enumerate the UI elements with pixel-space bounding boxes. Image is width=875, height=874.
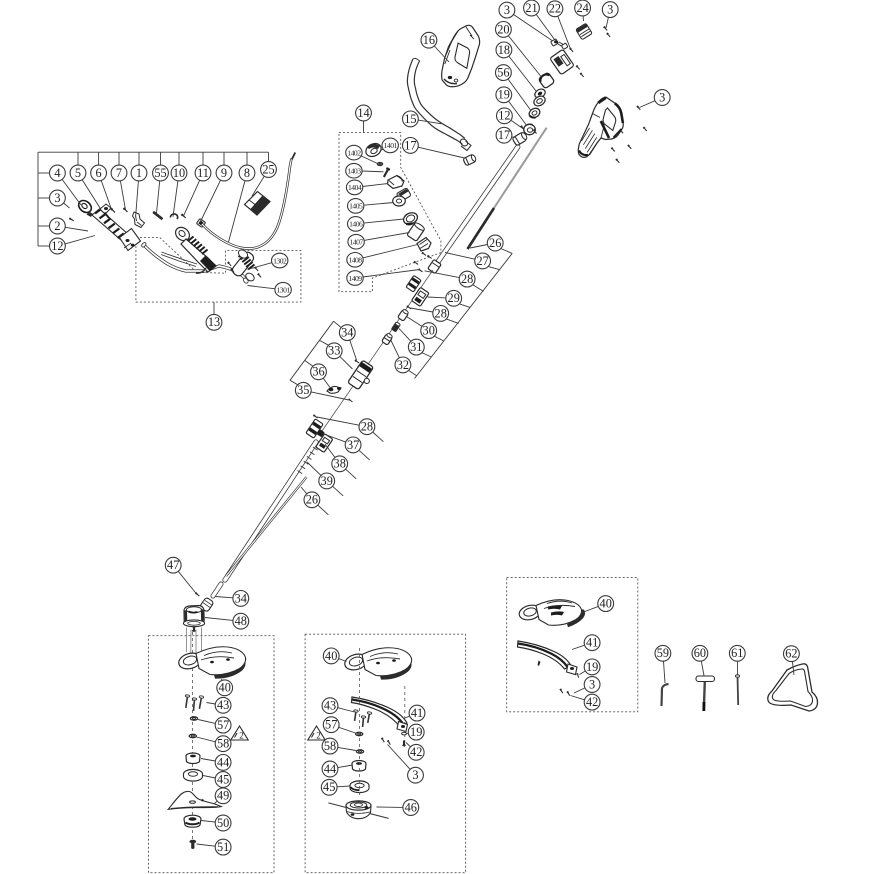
svg-text:60: 60: [694, 646, 706, 660]
svg-text:31: 31: [410, 340, 422, 354]
svg-text:28: 28: [435, 306, 447, 320]
svg-text:1405: 1405: [349, 202, 363, 211]
svg-text:43: 43: [217, 698, 229, 712]
svg-text:58: 58: [324, 739, 336, 753]
svg-text:61: 61: [731, 646, 743, 660]
svg-text:40: 40: [219, 681, 231, 695]
svg-text:40: 40: [600, 597, 612, 611]
svg-text:3: 3: [607, 3, 613, 17]
svg-text:1402: 1402: [347, 148, 361, 157]
svg-text:28: 28: [461, 272, 473, 286]
svg-text:1302: 1302: [273, 256, 287, 265]
svg-text:45: 45: [323, 780, 335, 794]
svg-text:21: 21: [525, 1, 537, 15]
svg-text:1404: 1404: [348, 183, 362, 192]
svg-text:46: 46: [405, 800, 417, 814]
svg-text:2: 2: [316, 731, 321, 741]
svg-text:26: 26: [306, 493, 318, 507]
svg-text:41: 41: [411, 706, 423, 720]
svg-text:2: 2: [239, 731, 244, 741]
svg-text:6: 6: [96, 166, 102, 180]
svg-text:28: 28: [361, 420, 373, 434]
svg-text:16: 16: [423, 33, 435, 47]
svg-text:29: 29: [448, 291, 460, 305]
svg-text:1406: 1406: [349, 220, 363, 229]
svg-text:1401: 1401: [384, 141, 398, 150]
svg-text:3: 3: [54, 191, 60, 205]
svg-text:47: 47: [167, 558, 179, 572]
svg-text:1301: 1301: [277, 286, 291, 295]
svg-text:44: 44: [217, 755, 229, 769]
svg-text:5: 5: [75, 166, 81, 180]
svg-text:12: 12: [498, 109, 510, 123]
svg-text:7: 7: [116, 166, 122, 180]
svg-text:18: 18: [498, 43, 510, 57]
svg-text:48: 48: [235, 614, 247, 628]
svg-text:9: 9: [221, 166, 227, 180]
svg-text:13: 13: [208, 315, 220, 329]
svg-text:3: 3: [504, 3, 510, 17]
svg-text:49: 49: [217, 789, 229, 803]
svg-text:42: 42: [586, 695, 598, 709]
svg-text:1408: 1408: [348, 256, 362, 265]
svg-text:62: 62: [785, 647, 797, 661]
svg-text:41: 41: [586, 636, 598, 650]
svg-text:10: 10: [173, 166, 185, 180]
svg-text:3: 3: [412, 768, 418, 782]
svg-text:34: 34: [235, 591, 247, 605]
svg-text:34: 34: [341, 326, 353, 340]
svg-text:14: 14: [357, 106, 369, 120]
svg-text:57: 57: [325, 718, 337, 732]
svg-text:44: 44: [324, 762, 336, 776]
svg-text:58: 58: [217, 737, 229, 751]
svg-text:19: 19: [586, 660, 598, 674]
svg-text:42: 42: [410, 745, 422, 759]
svg-text:1403: 1403: [347, 167, 361, 176]
svg-text:37: 37: [347, 438, 359, 452]
svg-text:25: 25: [262, 162, 274, 176]
svg-text:15: 15: [404, 112, 416, 126]
svg-text:20: 20: [497, 22, 509, 36]
svg-text:32: 32: [397, 358, 409, 372]
svg-text:56: 56: [497, 66, 509, 80]
svg-text:12: 12: [51, 239, 63, 253]
svg-text:1407: 1407: [350, 238, 364, 247]
svg-text:39: 39: [321, 474, 333, 488]
svg-text:59: 59: [657, 646, 669, 660]
svg-text:4: 4: [54, 166, 60, 180]
svg-text:35: 35: [297, 383, 309, 397]
svg-text:22: 22: [549, 2, 561, 16]
svg-text:11: 11: [197, 166, 209, 180]
svg-text:1409: 1409: [348, 274, 362, 283]
svg-text:43: 43: [324, 699, 336, 713]
svg-text:57: 57: [217, 718, 229, 732]
svg-text:19: 19: [410, 725, 422, 739]
svg-text:50: 50: [217, 816, 229, 830]
svg-text:27: 27: [476, 254, 488, 268]
svg-text:26: 26: [489, 236, 501, 250]
svg-text:36: 36: [312, 365, 324, 379]
svg-text:3: 3: [589, 677, 595, 691]
svg-text:51: 51: [217, 840, 229, 854]
svg-text:19: 19: [498, 88, 510, 102]
svg-text:24: 24: [576, 1, 588, 15]
svg-text:33: 33: [328, 344, 340, 358]
svg-text:30: 30: [423, 324, 435, 338]
svg-text:17: 17: [498, 128, 510, 142]
svg-text:3: 3: [659, 90, 665, 104]
svg-text:17: 17: [404, 138, 416, 152]
svg-text:1: 1: [136, 166, 142, 180]
svg-text:8: 8: [244, 166, 250, 180]
svg-text:55: 55: [154, 166, 166, 180]
svg-text:40: 40: [325, 649, 337, 663]
svg-text:38: 38: [334, 457, 346, 471]
svg-text:2: 2: [54, 219, 60, 233]
svg-text:45: 45: [217, 772, 229, 786]
